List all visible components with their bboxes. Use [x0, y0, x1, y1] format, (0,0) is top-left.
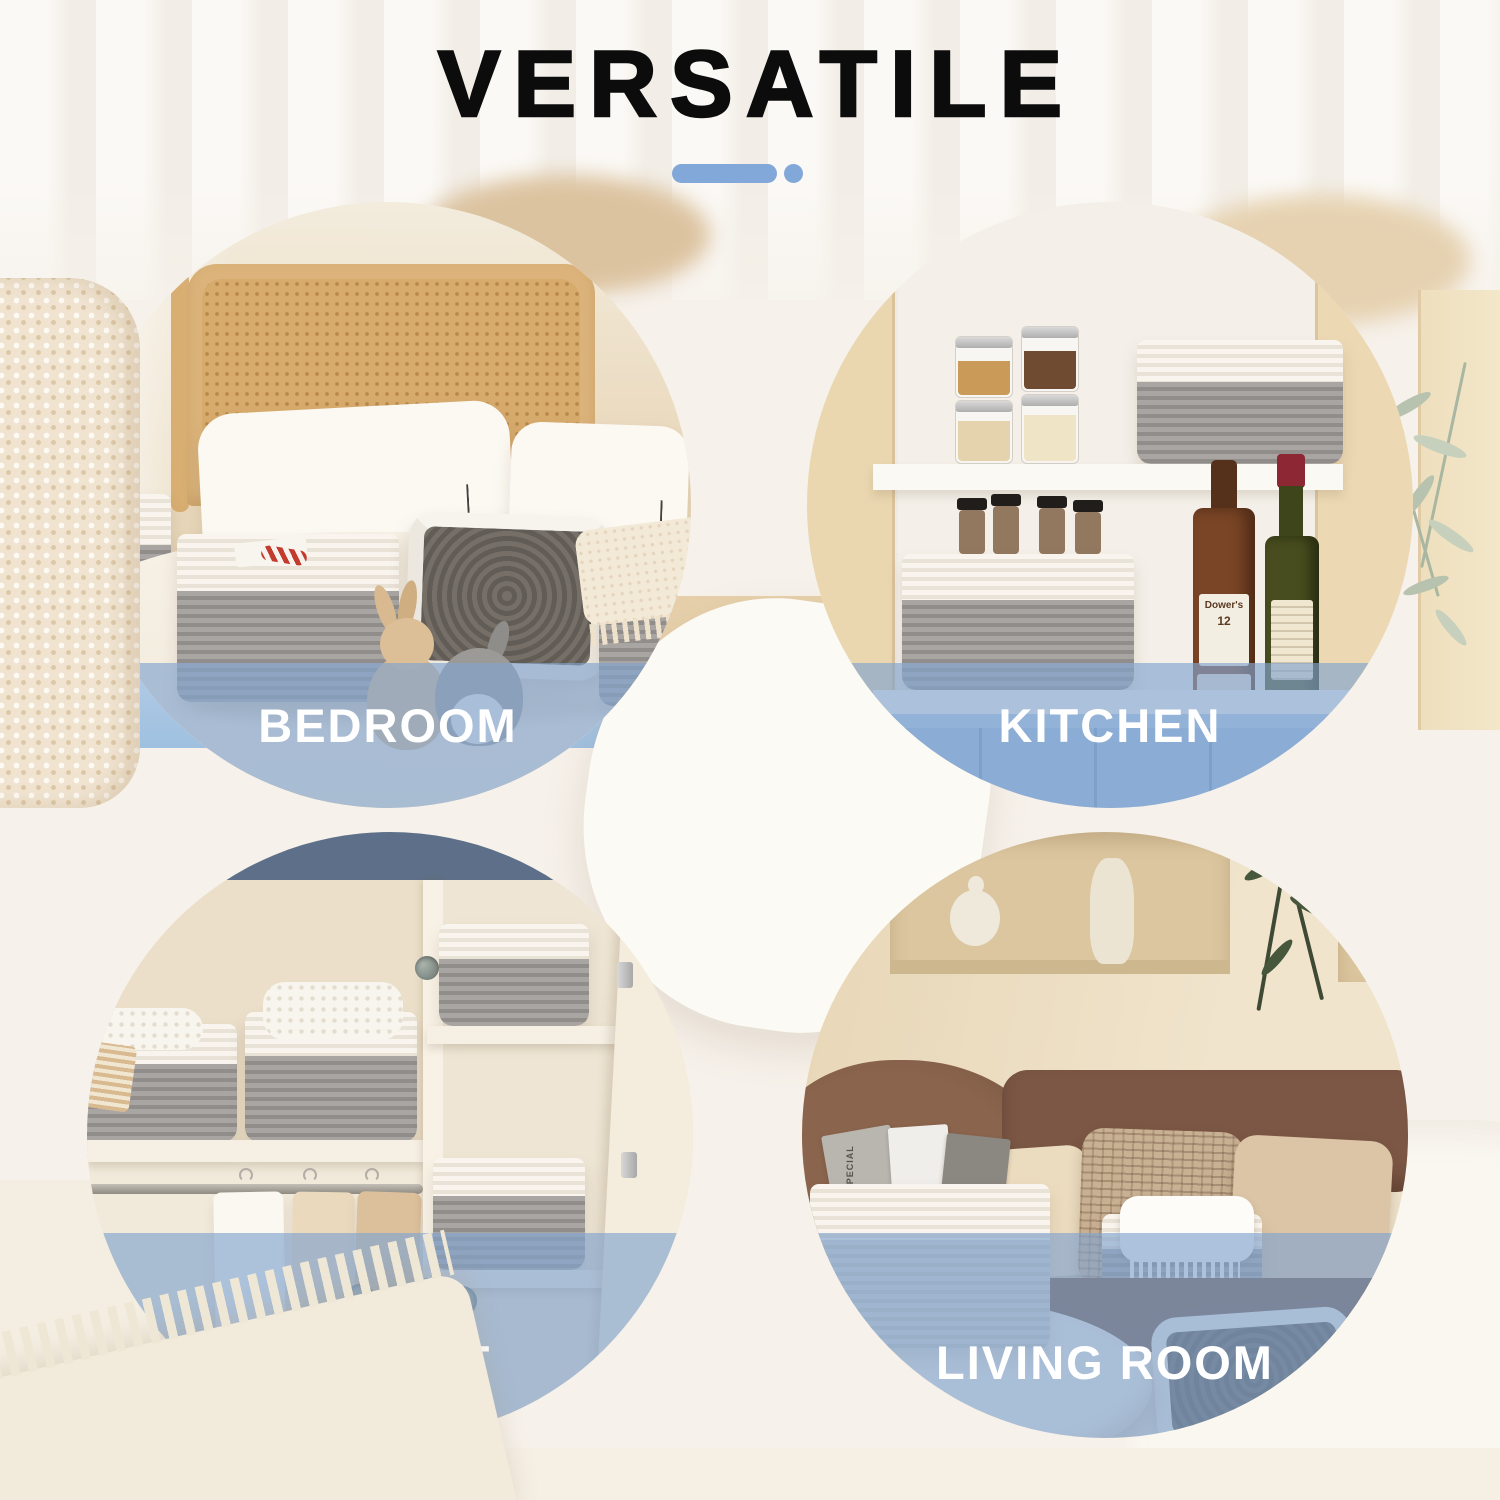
door-hinge [621, 1152, 637, 1178]
vase [1358, 892, 1394, 972]
spice-bottle [1075, 512, 1101, 554]
spice-bottle [959, 510, 985, 554]
glass-jar [955, 400, 1013, 464]
wall-niche [890, 832, 1230, 970]
hanger-hook [239, 1168, 253, 1182]
vase [1090, 858, 1134, 964]
scene-label: LIVING ROOM [936, 1335, 1274, 1390]
rope-basket [1137, 340, 1343, 464]
divider-dot [784, 164, 803, 183]
niche-shelf [890, 960, 1230, 974]
fringed-blanket [574, 513, 691, 627]
divider-line [672, 164, 777, 183]
living-room-photo-circle: SPECIAL LIVING ROOM [802, 832, 1408, 1438]
scene-label: KITCHEN [999, 698, 1222, 753]
glass-jar [1021, 326, 1079, 392]
knit-throw [263, 982, 403, 1040]
door-hinge [617, 962, 633, 988]
label-band: BEDROOM [85, 663, 691, 808]
whisky-age-text: 12 [1199, 614, 1249, 628]
vase-neck [968, 876, 984, 894]
whisky-brand-text: Dower's [1199, 600, 1249, 611]
label-band: KITCHEN [807, 663, 1413, 808]
rope-basket [439, 924, 589, 1026]
vase [950, 890, 1000, 946]
shelf-board [873, 464, 1343, 490]
wine-neck [1279, 486, 1303, 542]
spice-bottle [1039, 508, 1065, 554]
bedroom-photo-circle: BEDROOM [85, 202, 691, 808]
wall-above-wardrobe [87, 832, 693, 880]
scene-label: BEDROOM [258, 698, 517, 753]
page-title: VERSATILE [0, 30, 1500, 138]
hanger-hook [365, 1168, 379, 1182]
spice-bottle [993, 506, 1019, 554]
glass-jar [1021, 394, 1079, 464]
wine-cap [1277, 454, 1305, 488]
door-knob [415, 956, 439, 980]
label-band: LIVING ROOM [802, 1233, 1408, 1438]
hanger-hook [303, 1168, 317, 1182]
kitchen-photo-circle: Dower's 12 KITCHEN [807, 202, 1413, 808]
product-poster: VERSATILE [0, 0, 1500, 1500]
glass-jar [955, 336, 1013, 398]
whisky-label: Dower's 12 [1199, 594, 1249, 666]
cane-chair-foreground [0, 278, 140, 808]
whisky-bottle-neck [1211, 460, 1237, 512]
shelf-board [87, 1140, 427, 1162]
